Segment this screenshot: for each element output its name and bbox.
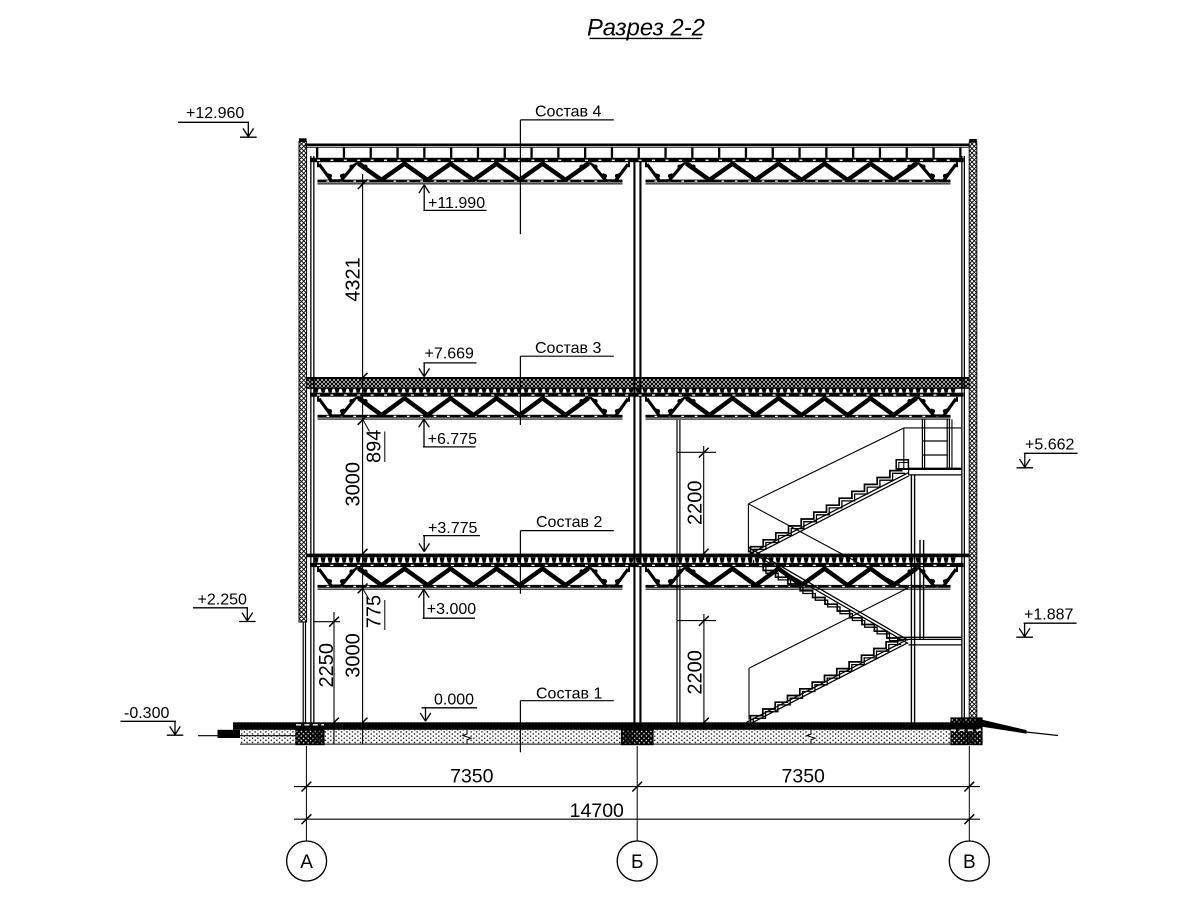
svg-text:2200: 2200 (685, 481, 707, 526)
svg-text:+12.960: +12.960 (186, 105, 244, 122)
svg-text:+7.669: +7.669 (425, 345, 474, 362)
svg-text:Состав 1: Состав 1 (536, 686, 602, 703)
svg-text:-0.300: -0.300 (124, 705, 169, 722)
svg-text:7350: 7350 (450, 765, 494, 787)
svg-text:0.000: 0.000 (434, 692, 474, 709)
svg-text:4321: 4321 (342, 257, 364, 302)
svg-text:А: А (300, 852, 313, 873)
svg-text:3000: 3000 (343, 633, 365, 678)
svg-text:2250: 2250 (316, 643, 338, 688)
svg-text:14700: 14700 (570, 800, 624, 822)
svg-text:+2.250: +2.250 (198, 592, 247, 609)
svg-text:Состав 3: Состав 3 (535, 340, 601, 357)
svg-text:+3.000: +3.000 (427, 601, 476, 618)
svg-text:+3.775: +3.775 (428, 520, 477, 537)
svg-text:+5.662: +5.662 (1025, 436, 1074, 453)
svg-text:Разрез 2-2: Разрез 2-2 (587, 15, 705, 42)
svg-text:7350: 7350 (782, 765, 826, 787)
svg-text:894: 894 (364, 430, 386, 463)
svg-text:+6.775: +6.775 (428, 431, 477, 448)
svg-text:+11.990: +11.990 (428, 195, 485, 212)
svg-text:Состав 4: Состав 4 (535, 103, 601, 120)
svg-text:Б: Б (631, 852, 643, 873)
svg-text:В: В (963, 852, 976, 873)
svg-text:+1.887: +1.887 (1024, 607, 1073, 624)
svg-text:775: 775 (364, 595, 386, 628)
svg-text:2200: 2200 (685, 650, 707, 695)
svg-text:3000: 3000 (342, 462, 364, 507)
svg-text:Состав 2: Состав 2 (536, 514, 602, 531)
